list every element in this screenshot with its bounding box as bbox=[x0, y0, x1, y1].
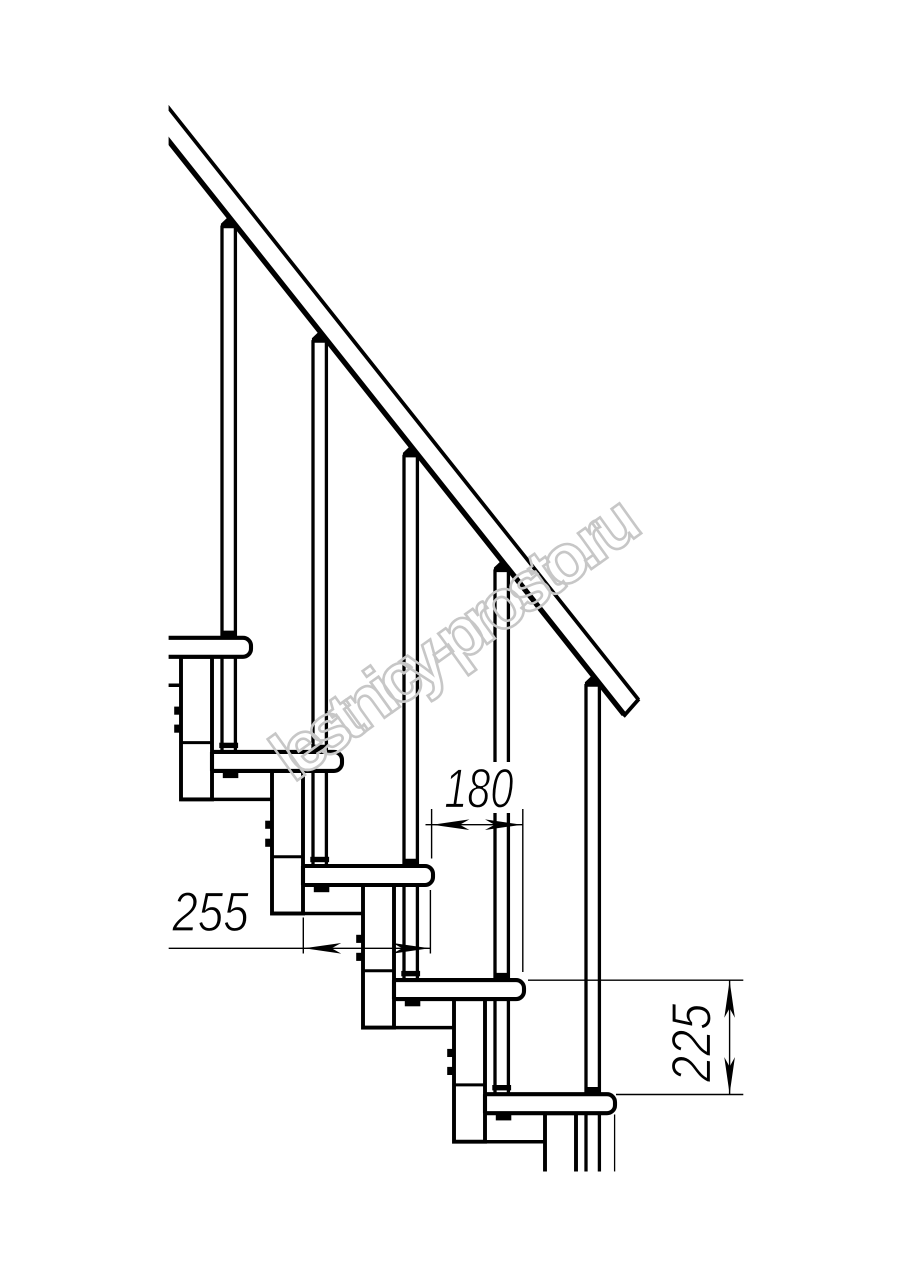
svg-text:255: 255 bbox=[171, 881, 249, 943]
svg-text:180: 180 bbox=[444, 757, 513, 820]
svg-text:225: 225 bbox=[660, 1003, 723, 1083]
